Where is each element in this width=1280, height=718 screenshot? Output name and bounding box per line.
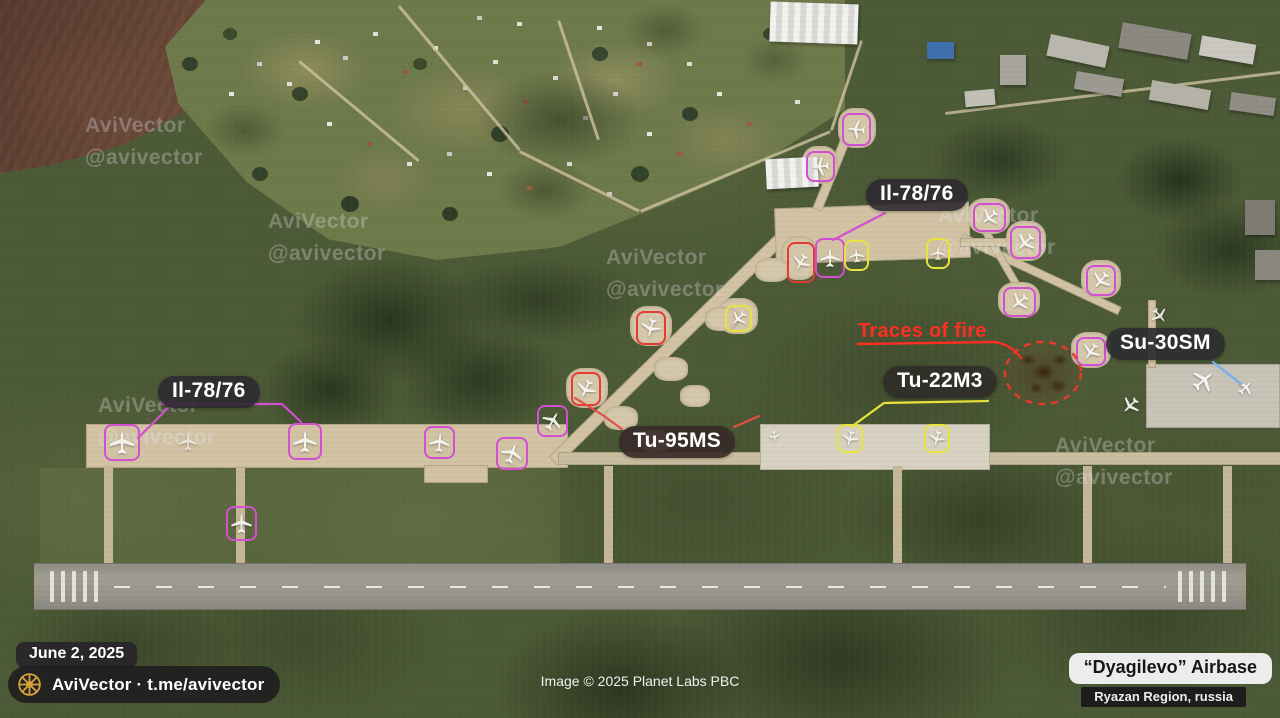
- airbase-region-badge: Ryazan Region, russia: [1081, 687, 1246, 707]
- tu22-apron: [760, 424, 990, 470]
- aircraft-detection-box: [537, 405, 568, 437]
- aircraft: [1234, 375, 1257, 400]
- label-traces-of-fire: Traces of fire: [858, 320, 987, 343]
- date-badge: June 2, 2025: [16, 642, 137, 668]
- aircraft-detection-box: [842, 113, 871, 146]
- runway-threshold: [1178, 571, 1230, 602]
- watermark-text: AviVector@avivector: [85, 110, 203, 173]
- apron-stub: [424, 465, 488, 483]
- aircraft-detection-box: [924, 424, 950, 453]
- airbase-name-badge: “Dyagilevo” Airbase: [1069, 653, 1272, 684]
- blue-roof-building: [927, 42, 954, 59]
- dispersal-pad: [680, 385, 710, 407]
- aircraft-detection-box: [1010, 226, 1041, 259]
- aircraft-detection-box: [926, 238, 950, 269]
- fire-damage-marks: [1002, 338, 1086, 408]
- watermark-text: AviVector@avivector: [268, 206, 386, 269]
- building: [1118, 22, 1191, 60]
- aircraft-detection-box: [973, 203, 1006, 232]
- aircraft: [1148, 303, 1171, 328]
- watermark-text: AviVector@avivector: [1055, 430, 1173, 493]
- aircraft-detection-box: [496, 437, 528, 470]
- label-il78-top: Il-78/76: [866, 179, 968, 211]
- aircraft-detection-box: [725, 305, 752, 332]
- building: [1074, 71, 1124, 97]
- dispersal-pad: [755, 258, 789, 282]
- dispersal-pad: [654, 357, 688, 381]
- aircraft-detection-box: [837, 424, 863, 453]
- aircraft-detection-box: [424, 426, 455, 459]
- taxiway-connector: [104, 466, 113, 568]
- label-il78-left: Il-78/76: [158, 376, 260, 408]
- pointer-line-fire: [858, 342, 1021, 358]
- aircraft-detection-box: [787, 242, 815, 283]
- aircraft-detection-box: [1076, 337, 1106, 366]
- aircraft-detection-box: [226, 506, 257, 541]
- aircraft: [1118, 392, 1143, 419]
- aircraft-detection-box: [806, 151, 835, 182]
- building: [1245, 200, 1275, 235]
- building: [1229, 92, 1276, 116]
- building: [964, 89, 995, 108]
- aircraft-detection-box: [1086, 265, 1116, 296]
- building: [1255, 250, 1280, 280]
- pointer-line-tu95-b: [734, 416, 759, 427]
- aircraft-detection-box: [571, 372, 601, 406]
- aircraft-detection-box: [815, 238, 845, 278]
- annotated-satellite-image: AviVector@avivectorAviVector@avivectorAv…: [0, 0, 1280, 718]
- runway-threshold: [50, 571, 102, 602]
- watermark-text: AviVector@avivector: [606, 242, 724, 305]
- aircraft-detection-box: [1003, 287, 1036, 317]
- runway: [34, 563, 1246, 610]
- aircraft: [1188, 364, 1219, 397]
- label-su30: Su-30SM: [1106, 328, 1225, 360]
- building: [1149, 80, 1212, 110]
- aircraft-detection-box: [844, 240, 869, 271]
- aircraft-detection-box: [636, 311, 666, 345]
- aircraft-detection-box: [104, 424, 140, 461]
- taxiway-connector: [604, 466, 613, 568]
- label-tu22: Tu-22M3: [883, 366, 997, 398]
- aircraft: [176, 427, 200, 457]
- building: [1046, 34, 1109, 68]
- label-tu95: Tu-95MS: [619, 426, 735, 458]
- taxiway-connector: [1223, 466, 1232, 568]
- building: [1000, 55, 1026, 85]
- aircraft-detection-box: [288, 423, 322, 460]
- aircraft: [766, 427, 783, 446]
- taxiway-connector: [893, 466, 902, 568]
- building: [1199, 35, 1257, 64]
- warehouse-building: [769, 1, 858, 44]
